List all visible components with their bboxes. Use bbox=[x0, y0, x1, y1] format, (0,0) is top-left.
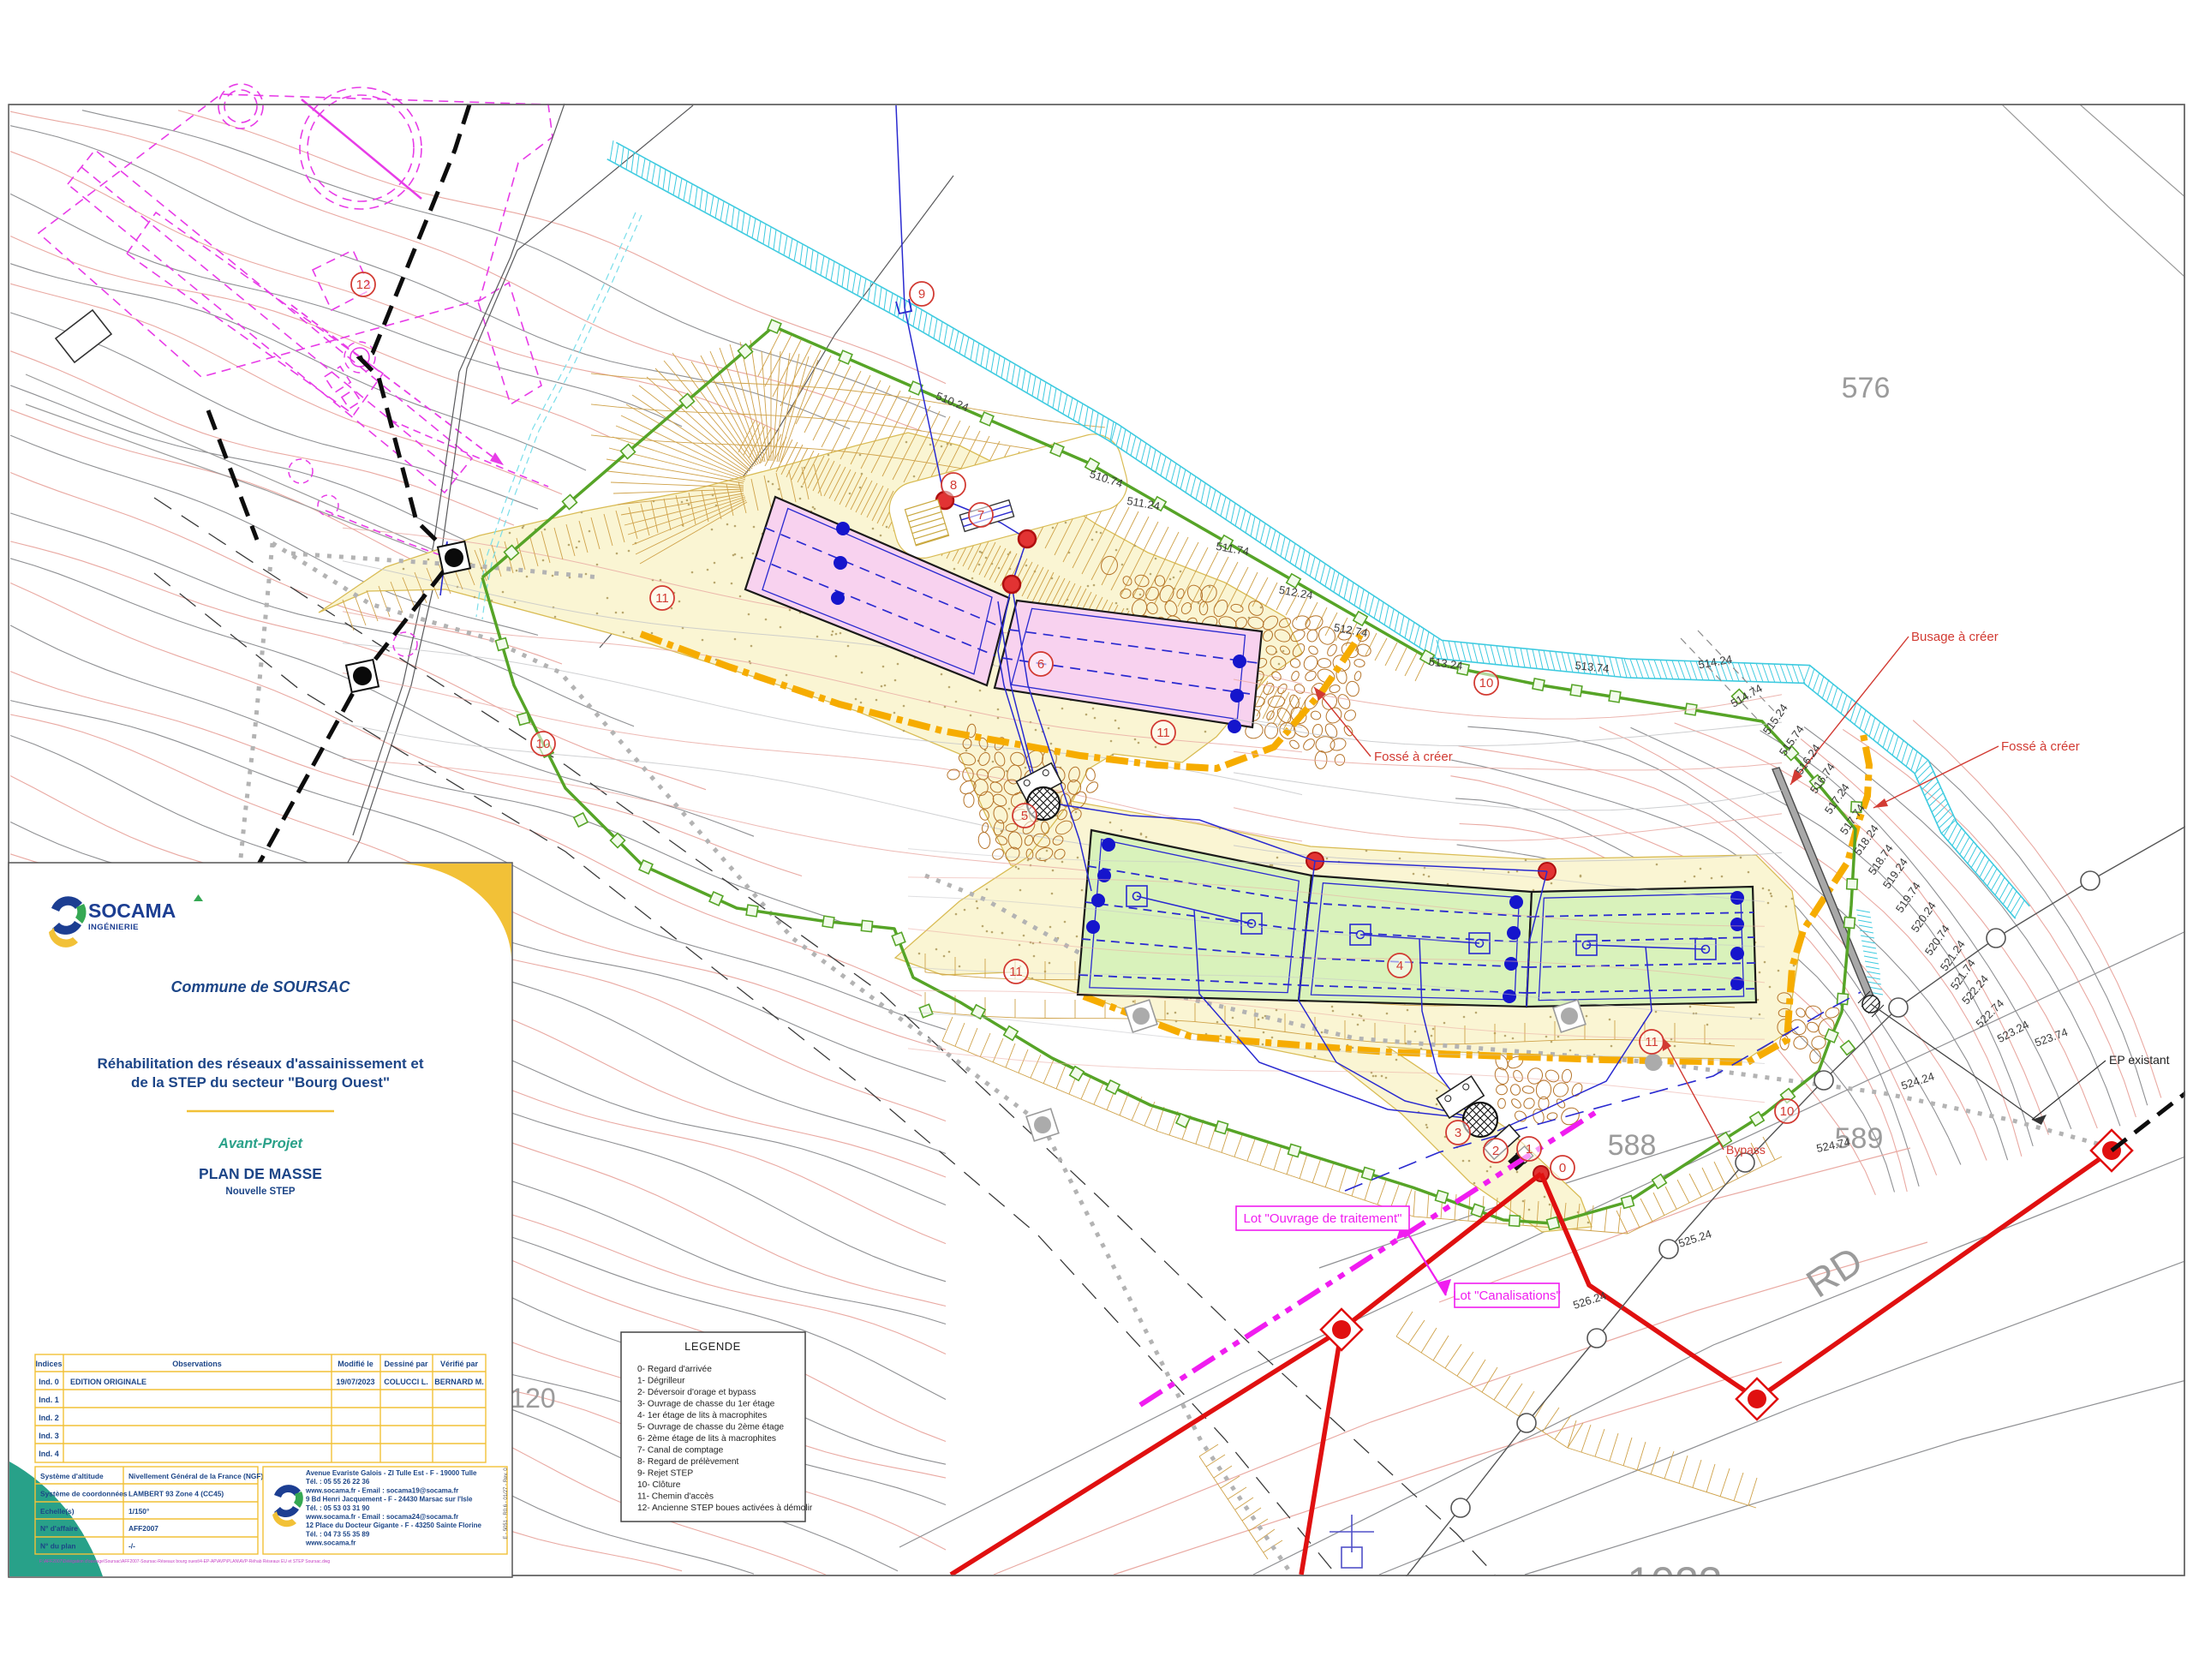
svg-text:LEGENDE: LEGENDE bbox=[684, 1340, 741, 1353]
svg-text:576: 576 bbox=[1842, 372, 1891, 404]
svg-text:F:\AFF2007\Délégation d'ouvrag: F:\AFF2007\Délégation d'ouvrage\Soursac\… bbox=[39, 1559, 330, 1564]
svg-text:11: 11 bbox=[1009, 965, 1023, 979]
svg-text:11: 11 bbox=[655, 591, 669, 606]
svg-text:Fossé à créer: Fossé à créer bbox=[2001, 739, 2080, 754]
svg-text:Lot "Ouvrage de traitement": Lot "Ouvrage de traitement" bbox=[1244, 1211, 1402, 1226]
svg-text:3- Ouvrage de chasse du 1er ét: 3- Ouvrage de chasse du 1er étage bbox=[637, 1400, 775, 1409]
svg-text:EDITION ORIGINALE: EDITION ORIGINALE bbox=[70, 1378, 146, 1386]
svg-text:Echelle(s): Echelle(s) bbox=[40, 1507, 75, 1516]
svg-text:Réhabilitation des réseaux d'a: Réhabilitation des réseaux d'assainissem… bbox=[97, 1055, 423, 1072]
svg-text:www.socama.fr - Email : socama: www.socama.fr - Email : socama24@socama.… bbox=[305, 1513, 458, 1521]
svg-text:Commune de SOURSAC: Commune de SOURSAC bbox=[170, 978, 350, 995]
svg-text:10: 10 bbox=[1780, 1104, 1795, 1119]
svg-text:11- Chemin d'accès: 11- Chemin d'accès bbox=[637, 1492, 714, 1502]
svg-text:10: 10 bbox=[1479, 676, 1494, 691]
svg-text:-/-: -/- bbox=[128, 1542, 135, 1551]
svg-text:Système de coordonnées: Système de coordonnées bbox=[40, 1489, 128, 1498]
svg-text:Bypass: Bypass bbox=[1726, 1143, 1766, 1157]
svg-text:19/07/2023: 19/07/2023 bbox=[336, 1378, 374, 1386]
svg-text:Observations: Observations bbox=[172, 1360, 222, 1368]
svg-text:Modifié le: Modifié le bbox=[338, 1360, 373, 1368]
svg-text:6: 6 bbox=[1037, 657, 1044, 672]
svg-text:4: 4 bbox=[1396, 959, 1403, 973]
svg-text:www.socama.fr - Email : socama: www.socama.fr - Email : socama19@socama.… bbox=[305, 1486, 458, 1494]
svg-text:3: 3 bbox=[1455, 1126, 1461, 1140]
svg-text:4- 1er étage de lits à macroph: 4- 1er étage de lits à macrophites bbox=[637, 1411, 767, 1420]
svg-text:Ind. 4: Ind. 4 bbox=[39, 1450, 59, 1458]
svg-text:Tél. : 05 55 26 22 36: Tél. : 05 55 26 22 36 bbox=[306, 1478, 370, 1486]
svg-text:5- Ouvrage de chasse du 2ème é: 5- Ouvrage de chasse du 2ème étage bbox=[637, 1423, 784, 1432]
svg-text:de la STEP du secteur "Bourg O: de la STEP du secteur "Bourg Ouest" bbox=[131, 1074, 390, 1091]
svg-text:Tél. : 04 73 55 35 89: Tél. : 04 73 55 35 89 bbox=[306, 1530, 370, 1538]
svg-text:Système d'altitude: Système d'altitude bbox=[40, 1472, 104, 1480]
svg-text:N° du plan: N° du plan bbox=[40, 1542, 76, 1551]
svg-text:12- Ancienne STEP boues activé: 12- Ancienne STEP boues activées à démol… bbox=[637, 1504, 813, 1513]
svg-text:Indices: Indices bbox=[35, 1360, 62, 1368]
svg-text:N° d'affaire: N° d'affaire bbox=[40, 1524, 78, 1533]
svg-text:E - 5051 - R0.6 - 01/27 - Rev.: E - 5051 - R0.6 - 01/27 - Rev. 0 bbox=[504, 1468, 509, 1540]
svg-text:SOCAMA: SOCAMA bbox=[88, 900, 176, 922]
svg-text:EP existant: EP existant bbox=[2109, 1053, 2170, 1067]
svg-text:1: 1 bbox=[1526, 1142, 1533, 1157]
svg-text:LAMBERT 93 Zone 4 (CC45): LAMBERT 93 Zone 4 (CC45) bbox=[128, 1489, 224, 1498]
svg-text:10: 10 bbox=[536, 737, 551, 751]
svg-text:Avant-Projet: Avant-Projet bbox=[218, 1136, 304, 1151]
svg-text:Lot "Canalisations": Lot "Canalisations" bbox=[1453, 1288, 1561, 1303]
svg-text:Ind. 2: Ind. 2 bbox=[39, 1414, 59, 1422]
svg-text:Dessiné par: Dessiné par bbox=[384, 1360, 428, 1368]
svg-text:Tél. : 05 53 03 31 90: Tél. : 05 53 03 31 90 bbox=[306, 1504, 370, 1512]
svg-text:120: 120 bbox=[510, 1383, 555, 1414]
svg-text:5: 5 bbox=[1021, 809, 1028, 823]
svg-text:Nivellement Général de la Fran: Nivellement Général de la France (NGF) bbox=[128, 1472, 264, 1480]
svg-text:12 Place du Docteur Gigante -: 12 Place du Docteur Gigante - F - 43250 … bbox=[306, 1522, 482, 1529]
svg-text:0- Regard d'arrivée: 0- Regard d'arrivée bbox=[637, 1365, 712, 1374]
svg-text:Fossé à créer: Fossé à créer bbox=[1374, 750, 1453, 764]
svg-text:0: 0 bbox=[1559, 1161, 1566, 1175]
svg-text:Busage à créer: Busage à créer bbox=[1911, 630, 1999, 644]
svg-text:COLUCCI L.: COLUCCI L. bbox=[384, 1378, 428, 1386]
svg-text:11: 11 bbox=[1645, 1035, 1658, 1049]
svg-text:2: 2 bbox=[1492, 1144, 1499, 1158]
svg-text:Ind. 1: Ind. 1 bbox=[39, 1396, 59, 1404]
svg-text:6- 2ème étage de lits à macrop: 6- 2ème étage de lits à macrophites bbox=[637, 1434, 776, 1444]
svg-text:8- Regard de prélèvement: 8- Regard de prélèvement bbox=[637, 1457, 739, 1467]
svg-text:12: 12 bbox=[356, 278, 371, 292]
svg-text:1- Dégrilleur: 1- Dégrilleur bbox=[637, 1377, 685, 1386]
svg-text:Ind. 0: Ind. 0 bbox=[39, 1378, 59, 1386]
svg-text:www.socama.fr: www.socama.fr bbox=[305, 1540, 356, 1547]
svg-text:2- Déversoir d'orage et bypass: 2- Déversoir d'orage et bypass bbox=[637, 1388, 756, 1397]
svg-text:588: 588 bbox=[1608, 1129, 1657, 1162]
svg-text:11: 11 bbox=[1156, 726, 1170, 740]
svg-text:Ind. 3: Ind. 3 bbox=[39, 1432, 59, 1440]
svg-text:PLAN DE MASSE: PLAN DE MASSE bbox=[199, 1165, 322, 1182]
svg-text:INGÉNIERIE: INGÉNIERIE bbox=[88, 923, 139, 932]
svg-text:10- Clôture: 10- Clôture bbox=[637, 1480, 681, 1490]
svg-text:7- Canal de comptage: 7- Canal de comptage bbox=[637, 1446, 724, 1456]
svg-text:Vérifié par: Vérifié par bbox=[440, 1360, 479, 1368]
svg-text:BERNARD M.: BERNARD M. bbox=[434, 1378, 484, 1386]
svg-text:AFF2007: AFF2007 bbox=[128, 1524, 158, 1533]
svg-text:Nouvelle STEP: Nouvelle STEP bbox=[225, 1187, 295, 1197]
svg-text:1/150°: 1/150° bbox=[128, 1507, 149, 1516]
svg-text:9- Rejet STEP: 9- Rejet STEP bbox=[637, 1469, 693, 1479]
svg-text:Avenue Evariste Galois - ZI Tu: Avenue Evariste Galois - ZI Tulle Est - … bbox=[306, 1469, 477, 1477]
svg-text:9 Bd Henri Jacquement - F - 24: 9 Bd Henri Jacquement - F - 24430 Marsac… bbox=[306, 1496, 473, 1504]
svg-text:9: 9 bbox=[918, 287, 925, 302]
svg-text:8: 8 bbox=[950, 478, 957, 493]
svg-text:7: 7 bbox=[977, 508, 984, 523]
